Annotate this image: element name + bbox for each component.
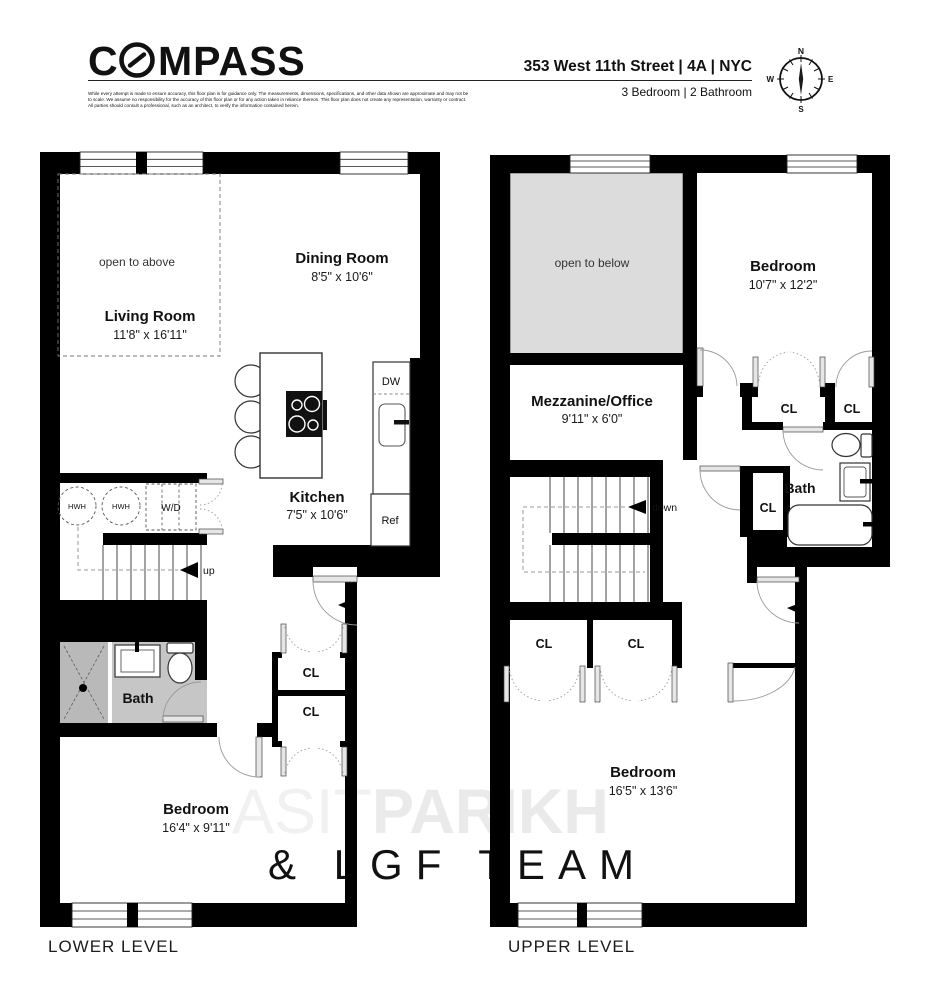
closet-label: CL bbox=[781, 402, 798, 416]
upper-bedroom2-dims: 16'5" x 13'6" bbox=[609, 784, 678, 798]
cooktop-icon bbox=[286, 391, 327, 437]
header: C MPASS While every attempt is made to e… bbox=[88, 38, 834, 114]
svg-text:ASITPARIKH: ASITPARIKH bbox=[232, 777, 609, 847]
living-room-dims: 11'8" x 16'11" bbox=[113, 328, 187, 342]
closet-label: CL bbox=[628, 637, 645, 651]
kitchen-label: Kitchen bbox=[289, 489, 344, 506]
mezzanine-dims: 9'11" x 6'0" bbox=[562, 412, 623, 426]
dining-room-label: Dining Room bbox=[295, 250, 388, 267]
open-to-below-label: open to below bbox=[555, 256, 630, 270]
dining-room-dims: 8'5" x 10'6" bbox=[311, 270, 373, 284]
closet-bifold-doors bbox=[281, 624, 347, 776]
mezz-closet-bifolds bbox=[504, 666, 677, 702]
watermark: ASITPARIKH & LGF TEAM bbox=[232, 777, 647, 888]
bedroom1-closet-bifold bbox=[753, 352, 825, 387]
disclaimer: While every attempt is made to ensure ac… bbox=[88, 91, 469, 108]
lower-bedroom-dims: 16'4" x 9'11" bbox=[162, 821, 230, 835]
unit-info: 3 Bedroom | 2 Bathroom bbox=[621, 85, 752, 99]
upper-level-title: UPPER LEVEL bbox=[508, 937, 635, 956]
up-label: up bbox=[203, 565, 215, 577]
closet-label: CL bbox=[303, 666, 320, 680]
open-to-above-label: open to above bbox=[99, 255, 175, 269]
address-title: 353 West 11th Street | 4A | NYC bbox=[524, 58, 752, 75]
lower-level-title: LOWER LEVEL bbox=[48, 937, 179, 956]
closet-label: CL bbox=[303, 705, 320, 719]
upper-bedroom1-dims: 10'7" x 12'2" bbox=[749, 278, 818, 292]
hall-closet-door bbox=[700, 466, 740, 510]
kitchen-dims: 7'5" x 10'6" bbox=[286, 508, 348, 522]
compass-rose-icon: N E S W bbox=[766, 46, 834, 114]
toilet-icon bbox=[832, 434, 872, 458]
bedroom2-door bbox=[728, 663, 795, 702]
window bbox=[80, 152, 203, 174]
watermark-line2: & LGF TEAM bbox=[268, 841, 647, 888]
bath-sink-icon bbox=[115, 640, 160, 677]
window bbox=[787, 155, 857, 173]
closet-label: CL bbox=[844, 402, 861, 416]
mezzanine-label: Mezzanine/Office bbox=[531, 393, 653, 410]
bedroom1-door bbox=[697, 348, 737, 386]
closet-label: CL bbox=[760, 501, 777, 515]
dw-label: DW bbox=[382, 376, 401, 388]
bath-door bbox=[783, 427, 823, 470]
down-label: down bbox=[652, 502, 677, 514]
hwh-label: HWH bbox=[112, 502, 130, 511]
down-arrow-icon bbox=[628, 500, 646, 514]
window bbox=[340, 152, 408, 174]
bedroom-door bbox=[219, 737, 262, 777]
upper-bath-label: Bath bbox=[784, 480, 815, 496]
compass-logo-text-rest: MPASS bbox=[158, 38, 306, 84]
bath-sink-icon bbox=[840, 463, 873, 501]
compass-e: E bbox=[828, 75, 834, 84]
compass-logo-o-icon bbox=[122, 45, 153, 76]
hwh-label: HWH bbox=[68, 502, 86, 511]
ref-label: Ref bbox=[381, 515, 399, 527]
window bbox=[570, 155, 650, 173]
window bbox=[518, 903, 642, 927]
compass-w: W bbox=[766, 75, 774, 84]
closet-label: CL bbox=[536, 637, 553, 651]
toilet-icon bbox=[167, 643, 193, 683]
up-arrow-icon bbox=[180, 562, 198, 578]
disclaimer-line: to scale. We assume no responsibility fo… bbox=[88, 97, 466, 102]
upper-bedroom2-label: Bedroom bbox=[610, 764, 676, 781]
compass-logo-text-c: C bbox=[88, 38, 119, 84]
disclaimer-line: While every attempt is made to ensure ac… bbox=[88, 91, 469, 96]
bedroom1-closet2-door bbox=[836, 351, 874, 387]
kitchen-sink-icon bbox=[379, 404, 409, 446]
french-doors bbox=[199, 479, 223, 534]
compass-n: N bbox=[798, 46, 804, 56]
living-room-label: Living Room bbox=[105, 308, 196, 325]
shower-area bbox=[60, 642, 110, 723]
floorplan-canvas: C MPASS While every attempt is made to e… bbox=[0, 0, 931, 1000]
lower-bath-label: Bath bbox=[122, 690, 153, 706]
bathtub-icon bbox=[788, 505, 873, 545]
compass-logo: C MPASS bbox=[88, 38, 306, 84]
kitchen-island bbox=[235, 353, 327, 478]
disclaimer-line: All parties should consult a professiona… bbox=[88, 103, 299, 108]
lower-doors bbox=[219, 576, 357, 777]
upper-bedroom1-label: Bedroom bbox=[750, 258, 816, 275]
window bbox=[72, 903, 192, 927]
compass-s: S bbox=[798, 105, 804, 114]
wd-label: W/D bbox=[161, 503, 180, 514]
lower-bedroom-label: Bedroom bbox=[163, 801, 229, 818]
